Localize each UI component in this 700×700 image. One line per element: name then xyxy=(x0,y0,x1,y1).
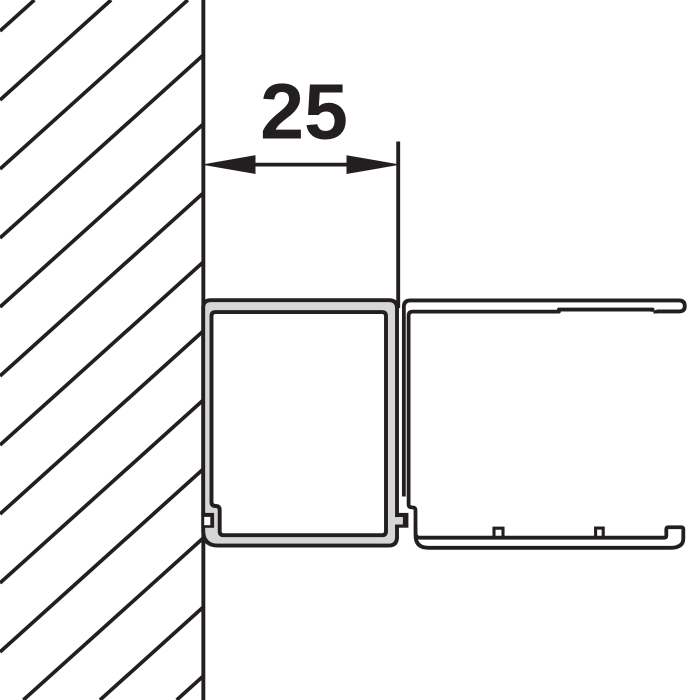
svg-text:25: 25 xyxy=(260,67,348,156)
